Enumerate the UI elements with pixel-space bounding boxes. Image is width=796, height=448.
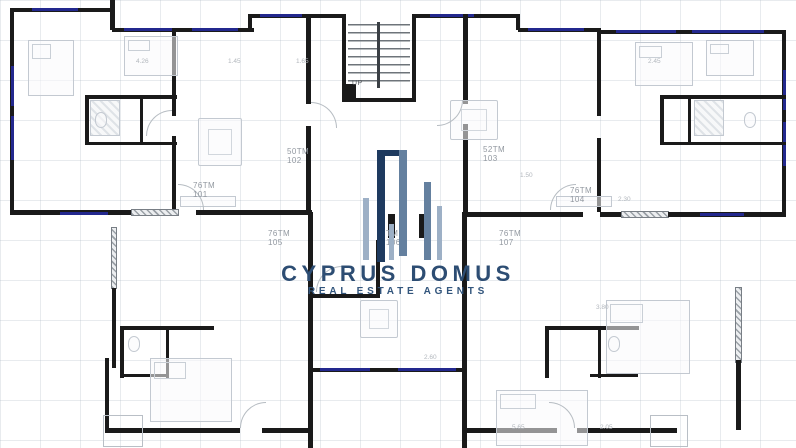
bathtub — [694, 100, 724, 136]
logo-bar-icon — [399, 150, 407, 256]
toilet — [128, 336, 140, 352]
apartment-number: 101 — [193, 190, 208, 199]
floor-plan: UP 76TM101 50TM102 52TM103 76TM104 76TM1… — [0, 0, 796, 448]
wall-segment — [85, 95, 177, 99]
wall-segment — [597, 28, 601, 116]
wall-segment — [140, 95, 143, 145]
apartment-area: 76TM — [193, 181, 215, 190]
wall-segment — [196, 210, 312, 215]
apartment-number: 102 — [287, 156, 302, 165]
apartment-area: 52TM — [483, 145, 505, 154]
apartment-label-107: 76TM107 — [499, 229, 521, 247]
window-segment — [783, 70, 786, 110]
dimension-label: 1.65 — [296, 58, 309, 65]
wall-segment — [660, 95, 664, 145]
bed-furniture — [150, 358, 232, 422]
brand-tagline: REAL ESTATE AGENTS — [308, 286, 488, 297]
wall-segment — [306, 126, 311, 212]
window-segment — [398, 368, 456, 371]
door-arc — [311, 102, 337, 128]
window-segment — [320, 368, 370, 371]
wall-segment — [462, 212, 467, 448]
window-segment — [60, 212, 108, 215]
wall-segment — [85, 142, 177, 145]
apartment-label-103: 52TM103 — [483, 145, 505, 163]
apartment-area: 50TM — [287, 147, 309, 156]
wall-segment — [112, 228, 116, 288]
apartment-label-101: 76TM101 — [193, 181, 215, 199]
apartment-number: 103 — [483, 154, 498, 163]
window-segment — [528, 28, 584, 31]
wall-segment — [465, 212, 583, 217]
apartment-number: 105 — [268, 238, 283, 247]
logo-bar-icon — [363, 198, 369, 260]
dimension-label: 5.65 — [512, 424, 525, 431]
apartment-number: 107 — [499, 238, 514, 247]
staircase-divider — [377, 22, 380, 88]
wall-segment — [736, 288, 741, 362]
wall-segment — [306, 14, 346, 18]
dimension-label: 2.05 — [600, 424, 613, 431]
logo-bar-icon — [424, 182, 431, 260]
wall-segment — [688, 95, 691, 145]
logo-bar-icon — [437, 206, 442, 260]
wall-segment — [85, 95, 89, 145]
logo-bar-icon — [389, 224, 394, 260]
window-segment — [32, 8, 78, 11]
wall-segment — [660, 95, 786, 99]
wall-segment — [112, 288, 116, 368]
wall-segment — [344, 98, 416, 102]
wall-segment — [248, 14, 252, 32]
table-furniture — [360, 300, 398, 338]
wall-segment — [660, 142, 786, 145]
bed-furniture — [706, 40, 754, 76]
wall-segment — [590, 374, 638, 377]
wall-segment — [262, 428, 313, 433]
window-segment — [616, 30, 676, 33]
wall-segment — [545, 326, 549, 378]
apartment-number: 104 — [570, 195, 585, 204]
toilet — [744, 112, 756, 128]
bed-furniture — [496, 390, 588, 446]
stair-up-label: UP — [352, 80, 363, 87]
wall-segment — [598, 326, 601, 378]
dimension-label: 4.26 — [136, 58, 149, 65]
wall-segment — [412, 16, 416, 102]
apartment-area: 76TM — [570, 186, 592, 195]
wall-segment — [600, 212, 622, 217]
balcony-outline — [103, 415, 143, 447]
table-furniture — [198, 118, 242, 166]
window-segment — [692, 30, 764, 33]
wall-segment — [132, 210, 178, 215]
apartment-area: 76TM — [499, 229, 521, 238]
dimension-label: 1.45 — [228, 58, 241, 65]
window-segment — [11, 116, 14, 160]
bed-furniture — [124, 36, 178, 76]
dimension-label: 1.50 — [520, 172, 533, 179]
toilet — [95, 112, 107, 128]
door-arc — [146, 110, 172, 136]
bed-furniture — [635, 42, 693, 86]
balcony-outline — [650, 415, 688, 447]
apartment-area: 76TM — [268, 229, 290, 238]
dimension-label: 2.60 — [424, 354, 437, 361]
wall-segment — [736, 360, 741, 430]
window-segment — [11, 66, 14, 106]
logo-bar-icon — [377, 150, 385, 262]
apartment-label-105: 76TM105 — [268, 229, 290, 247]
bed-furniture — [28, 40, 74, 96]
bed-furniture — [606, 300, 690, 374]
wall-segment — [622, 212, 668, 217]
wall-segment — [120, 326, 124, 378]
wall-segment — [308, 212, 313, 448]
window-segment — [700, 213, 744, 216]
wall-segment — [172, 136, 176, 212]
apartment-label-104: 76TM104 — [570, 186, 592, 204]
door-arc — [240, 402, 266, 428]
window-segment — [124, 28, 174, 31]
window-segment — [192, 28, 238, 31]
wall-segment — [110, 0, 115, 30]
wall-segment — [463, 14, 468, 104]
wall-segment — [10, 8, 14, 214]
dimension-label: 2.30 — [618, 196, 631, 203]
window-segment — [260, 14, 302, 17]
brand-name: CYPRUS DOMUS — [281, 261, 515, 287]
apartment-label-102: 50TM102 — [287, 147, 309, 165]
dimension-label: 3.80 — [596, 304, 609, 311]
toilet — [608, 336, 620, 352]
dimension-label: 2.45 — [648, 58, 661, 65]
